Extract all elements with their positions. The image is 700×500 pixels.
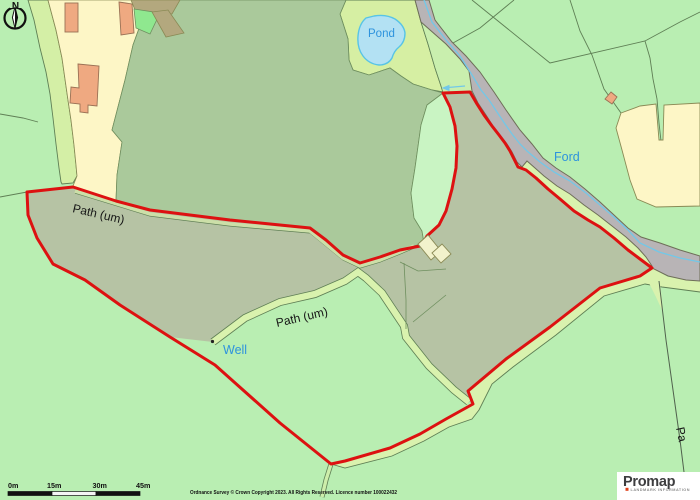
svg-text:Well: Well [223, 343, 247, 357]
svg-text:15m: 15m [47, 481, 61, 490]
svg-text:Pond: Pond [368, 28, 395, 40]
svg-text:0m: 0m [8, 481, 18, 490]
svg-text:Ordnance Survey © Crown Copyri: Ordnance Survey © Crown Copyright 2023. … [190, 489, 397, 496]
svg-text:30m: 30m [93, 481, 107, 490]
svg-text:45m: 45m [136, 481, 150, 490]
svg-text:LANDMARK INFORMATION: LANDMARK INFORMATION [631, 488, 691, 492]
svg-text:Ford: Ford [554, 150, 580, 164]
